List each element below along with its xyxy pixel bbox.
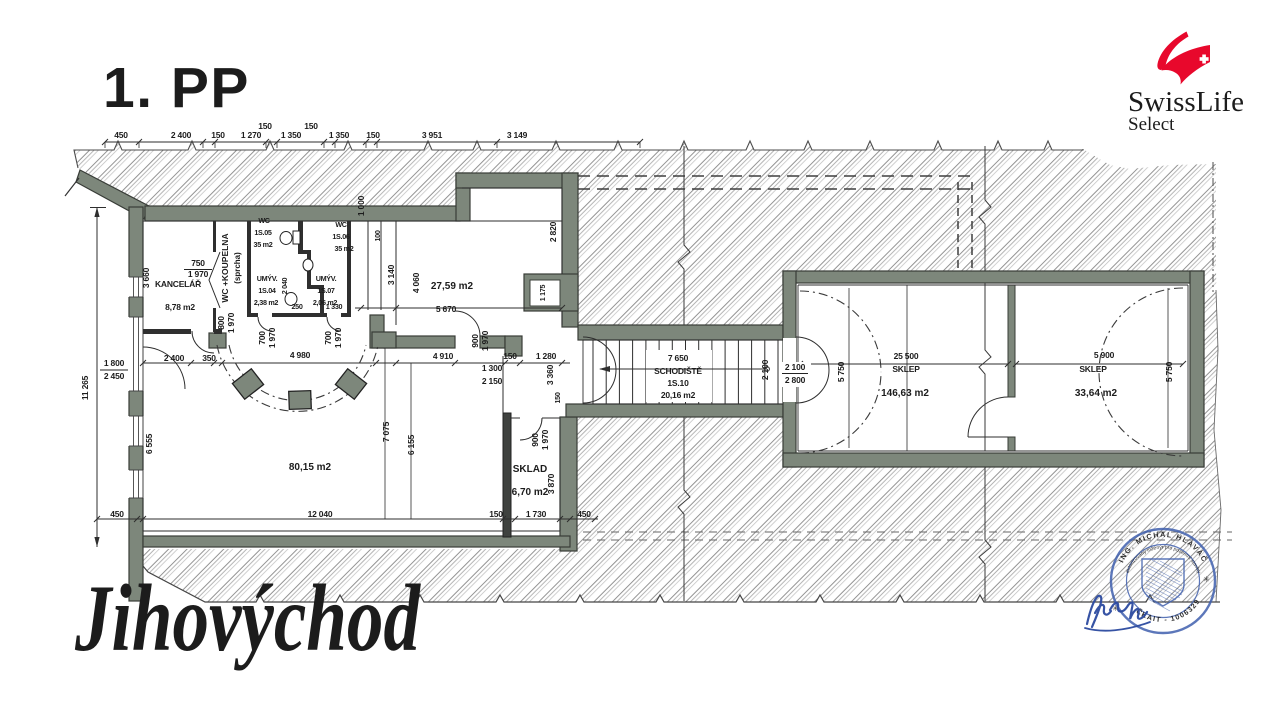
svg-text:350: 350 (202, 353, 216, 363)
svg-text:5 900: 5 900 (1094, 350, 1115, 360)
svg-text:12 040: 12 040 (308, 509, 333, 519)
svg-text:146,63 m2: 146,63 m2 (881, 388, 929, 399)
svg-text:1 300: 1 300 (482, 363, 503, 373)
svg-text:2 400: 2 400 (164, 353, 185, 363)
svg-text:2 040: 2 040 (280, 277, 289, 294)
svg-text:2 150: 2 150 (482, 376, 503, 386)
svg-text:150: 150 (304, 121, 318, 131)
svg-text:4 910: 4 910 (433, 351, 454, 361)
svg-text:35 m2: 35 m2 (254, 240, 273, 249)
svg-text:SKLAD: SKLAD (513, 464, 547, 475)
svg-text:33,64 m2: 33,64 m2 (1075, 388, 1118, 399)
svg-text:1 970: 1 970 (188, 269, 209, 279)
svg-text:100: 100 (373, 230, 382, 241)
svg-text:150: 150 (489, 509, 503, 519)
svg-text:2 800: 2 800 (785, 375, 806, 385)
svg-text:2 450: 2 450 (104, 371, 125, 381)
svg-text:SKLEP: SKLEP (892, 364, 920, 374)
svg-text:4 060: 4 060 (411, 272, 421, 293)
svg-text:1 970: 1 970 (333, 327, 343, 348)
svg-text:250: 250 (291, 302, 302, 311)
svg-text:450: 450 (114, 130, 128, 140)
svg-text:1 175: 1 175 (538, 284, 547, 301)
svg-text:1 280: 1 280 (536, 351, 557, 361)
svg-text:1S.10: 1S.10 (667, 378, 689, 388)
svg-text:1S.04: 1S.04 (258, 286, 276, 295)
svg-text:3 951: 3 951 (422, 130, 443, 140)
svg-text:KANCELÁŘ: KANCELÁŘ (155, 278, 201, 289)
svg-text:2 100: 2 100 (785, 362, 806, 372)
svg-text:✳: ✳ (1203, 575, 1210, 584)
svg-text:SKLEP: SKLEP (1079, 364, 1107, 374)
svg-text:1 970: 1 970 (226, 312, 236, 333)
svg-text:25 500: 25 500 (894, 351, 919, 361)
svg-text:3 360: 3 360 (545, 364, 555, 385)
svg-text:450: 450 (110, 509, 124, 519)
svg-text:SCHODIŠTĚ: SCHODIŠTĚ (654, 365, 702, 376)
svg-text:1. PP: 1. PP (103, 56, 250, 120)
svg-text:WC: WC (258, 216, 269, 225)
svg-text:1 730: 1 730 (526, 509, 547, 519)
svg-text:150: 150 (366, 130, 380, 140)
svg-text:2 400: 2 400 (171, 130, 192, 140)
svg-text:80,15 m2: 80,15 m2 (289, 462, 332, 473)
svg-text:Select: Select (1128, 114, 1175, 135)
svg-text:3 140: 3 140 (386, 264, 396, 285)
svg-text:1S.05: 1S.05 (254, 228, 272, 237)
svg-text:150: 150 (258, 121, 272, 131)
svg-text:6,70 m2: 6,70 m2 (512, 487, 549, 498)
svg-text:1 800: 1 800 (104, 358, 125, 368)
svg-text:900: 900 (470, 334, 480, 348)
svg-text:6 555: 6 555 (144, 433, 154, 454)
svg-text:5 670: 5 670 (436, 304, 457, 314)
svg-text:1S.06: 1S.06 (332, 232, 350, 241)
svg-text:20,16 m2: 20,16 m2 (661, 390, 696, 400)
svg-text:150: 150 (553, 392, 562, 403)
svg-text:7 075: 7 075 (381, 421, 391, 442)
svg-text:2,38 m2: 2,38 m2 (254, 298, 279, 307)
svg-text:1 350: 1 350 (329, 130, 350, 140)
svg-text:700: 700 (323, 331, 333, 345)
svg-text:1 000: 1 000 (356, 195, 366, 216)
svg-text:8,78 m2: 8,78 m2 (165, 302, 195, 312)
svg-text:900: 900 (530, 433, 540, 447)
svg-text:3 149: 3 149 (507, 130, 528, 140)
svg-text:3 660: 3 660 (141, 267, 151, 288)
svg-text:150: 150 (503, 351, 517, 361)
svg-text:27,59 m2: 27,59 m2 (431, 281, 474, 292)
svg-text:1 330: 1 330 (326, 302, 343, 311)
svg-text:700: 700 (257, 331, 267, 345)
svg-text:Jihovýchod: Jihovýchod (74, 565, 421, 671)
svg-text:1 350: 1 350 (281, 130, 302, 140)
svg-text:2 100: 2 100 (760, 359, 770, 380)
svg-text:3 870: 3 870 (546, 473, 556, 494)
svg-text:5 750: 5 750 (1164, 361, 1174, 382)
svg-text:6 155: 6 155 (406, 434, 416, 455)
svg-text:7 650: 7 650 (668, 353, 689, 363)
svg-text:1 970: 1 970 (540, 429, 550, 450)
svg-text:(sprcha): (sprcha) (233, 252, 242, 284)
svg-text:UMÝV.: UMÝV. (316, 274, 337, 283)
svg-text:450: 450 (577, 509, 591, 519)
svg-text:WC: WC (335, 220, 346, 229)
svg-text:UMÝV.: UMÝV. (257, 274, 278, 283)
svg-text:1 970: 1 970 (480, 330, 490, 351)
svg-text:150: 150 (211, 130, 225, 140)
svg-text:35 m2: 35 m2 (335, 244, 354, 253)
svg-text:800: 800 (216, 316, 226, 330)
svg-text:11 265: 11 265 (80, 375, 90, 400)
svg-text:750: 750 (191, 258, 205, 268)
svg-text:WC +KOUPELNA: WC +KOUPELNA (220, 233, 230, 302)
svg-text:4 980: 4 980 (290, 350, 311, 360)
svg-text:5 750: 5 750 (836, 361, 846, 382)
svg-text:1 970: 1 970 (267, 327, 277, 348)
svg-text:1S.07: 1S.07 (317, 286, 335, 295)
svg-text:1 270: 1 270 (241, 130, 262, 140)
svg-text:2 820: 2 820 (548, 221, 558, 242)
